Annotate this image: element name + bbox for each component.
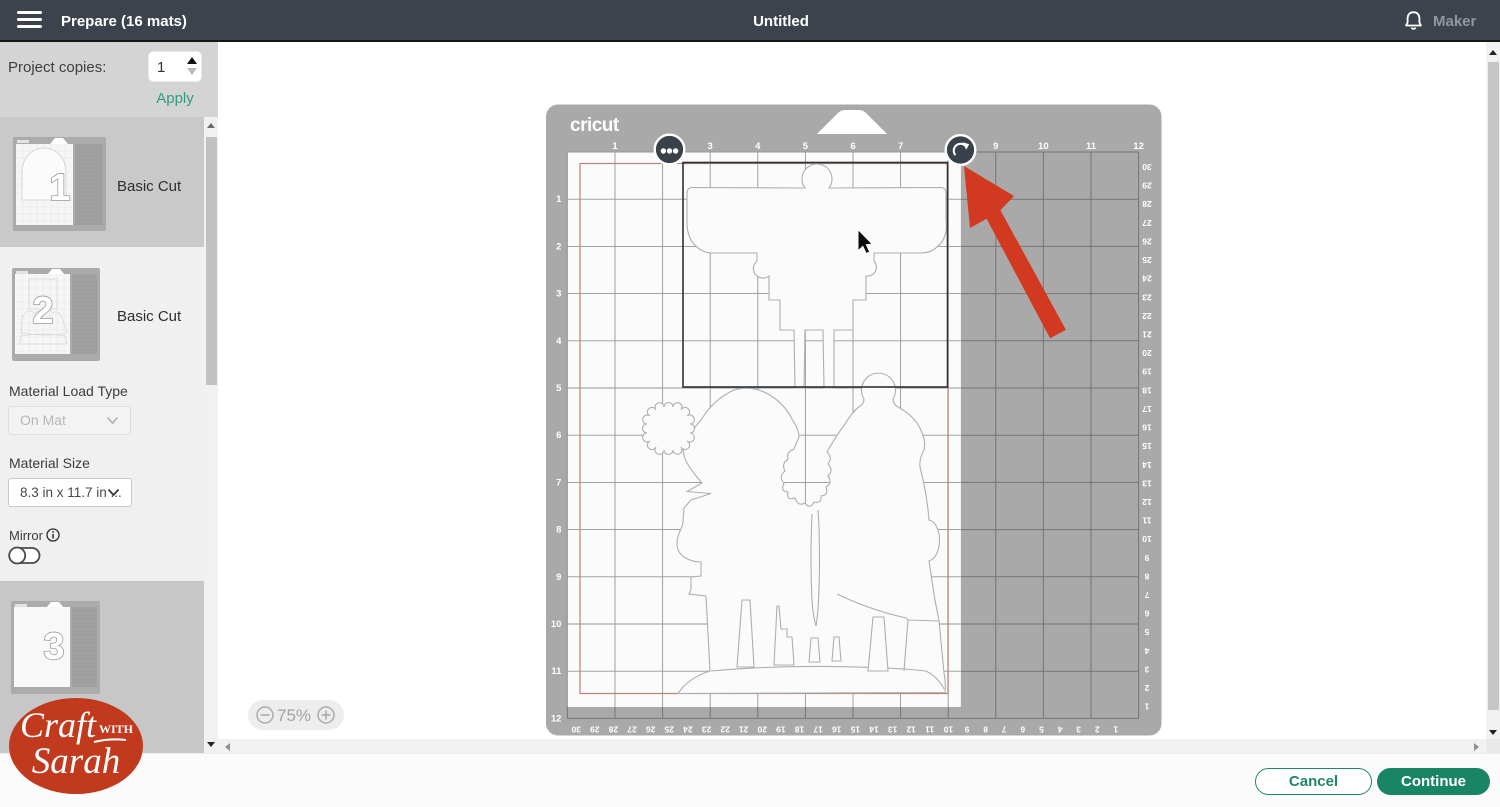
svg-text:9: 9 [993,141,998,152]
svg-text:17: 17 [1142,404,1152,414]
svg-text:7: 7 [1002,725,1007,735]
svg-text:13: 13 [888,725,898,735]
svg-text:1: 1 [49,167,70,209]
svg-text:3: 3 [43,626,64,668]
svg-text:5: 5 [1039,725,1044,735]
svg-text:16: 16 [832,725,842,735]
svg-text:1: 1 [612,141,618,152]
svg-text:3: 3 [1144,665,1149,675]
svg-text:24: 24 [683,725,693,735]
svg-text:10: 10 [1038,141,1049,152]
svg-text:28: 28 [608,725,618,735]
svg-text:28: 28 [1142,199,1152,209]
svg-text:15: 15 [850,725,860,735]
svg-text:15: 15 [1142,441,1152,451]
svg-text:4: 4 [1057,725,1062,735]
svg-text:29: 29 [590,725,600,735]
svg-text:5: 5 [556,383,562,394]
svg-text:6: 6 [1020,725,1025,735]
svg-text:19: 19 [776,725,786,735]
svg-text:13: 13 [1142,478,1152,488]
svg-text:25: 25 [1142,255,1152,265]
svg-text:Craft: Craft [20,705,97,745]
svg-text:26: 26 [646,725,656,735]
svg-text:12: 12 [551,713,562,724]
svg-text:22: 22 [1142,311,1152,321]
svg-text:11: 11 [925,725,934,735]
svg-text:8: 8 [1144,571,1149,581]
svg-text:7: 7 [898,141,903,152]
svg-text:20: 20 [1142,348,1152,358]
svg-text:5: 5 [803,141,809,152]
svg-text:2: 2 [1095,725,1100,735]
svg-text:14: 14 [1142,460,1152,470]
svg-text:1: 1 [556,194,562,205]
svg-text:18: 18 [795,725,805,735]
svg-text:30: 30 [571,725,581,735]
svg-text:11: 11 [1086,141,1097,152]
svg-text:21: 21 [739,725,749,735]
svg-text:2: 2 [556,241,561,252]
svg-text:20: 20 [757,725,767,735]
svg-text:6: 6 [1144,609,1149,619]
svg-text:8: 8 [556,525,561,536]
svg-text:1: 1 [1113,725,1118,735]
svg-text:30: 30 [1142,162,1152,172]
svg-text:27: 27 [1142,218,1152,228]
svg-text:9: 9 [1144,553,1149,563]
svg-text:WITH: WITH [99,722,134,736]
svg-text:19: 19 [1142,367,1152,377]
svg-text:12: 12 [906,725,916,735]
svg-text:21: 21 [1142,330,1152,340]
svg-text:17: 17 [813,725,823,735]
svg-text:11: 11 [1142,516,1151,526]
svg-text:4: 4 [755,141,761,152]
svg-text:29: 29 [1142,181,1152,191]
svg-text:14: 14 [869,725,879,735]
svg-text:26: 26 [1142,236,1152,246]
svg-text:2: 2 [32,290,53,332]
svg-text:9: 9 [964,725,969,735]
svg-text:3: 3 [708,141,713,152]
svg-text:5: 5 [1144,627,1149,637]
svg-text:23: 23 [1142,292,1152,302]
svg-text:18: 18 [1142,385,1152,395]
svg-text:24: 24 [1142,274,1152,284]
svg-text:12: 12 [1142,497,1152,507]
svg-text:cricut: cricut [570,115,620,136]
svg-text:6: 6 [556,430,561,441]
svg-text:8: 8 [983,725,988,735]
svg-text:22: 22 [720,725,730,735]
svg-text:1: 1 [1144,702,1149,712]
svg-text:10: 10 [551,619,562,630]
svg-text:3: 3 [556,289,561,300]
svg-text:3: 3 [1076,725,1081,735]
svg-text:4: 4 [1144,646,1149,656]
svg-text:7: 7 [556,477,561,488]
svg-text:9: 9 [556,572,561,583]
svg-text:12: 12 [1133,141,1144,152]
svg-text:2: 2 [1144,683,1149,693]
svg-text:10: 10 [943,725,953,735]
svg-text:10: 10 [1142,534,1152,544]
svg-text:4: 4 [556,336,562,347]
svg-text:Sarah: Sarah [32,741,120,782]
svg-text:27: 27 [627,725,637,735]
svg-text:16: 16 [1142,423,1152,433]
svg-text:23: 23 [702,725,712,735]
svg-text:25: 25 [664,725,674,735]
svg-text:6: 6 [850,141,855,152]
svg-text:11: 11 [551,666,562,677]
svg-text:7: 7 [1144,590,1149,600]
